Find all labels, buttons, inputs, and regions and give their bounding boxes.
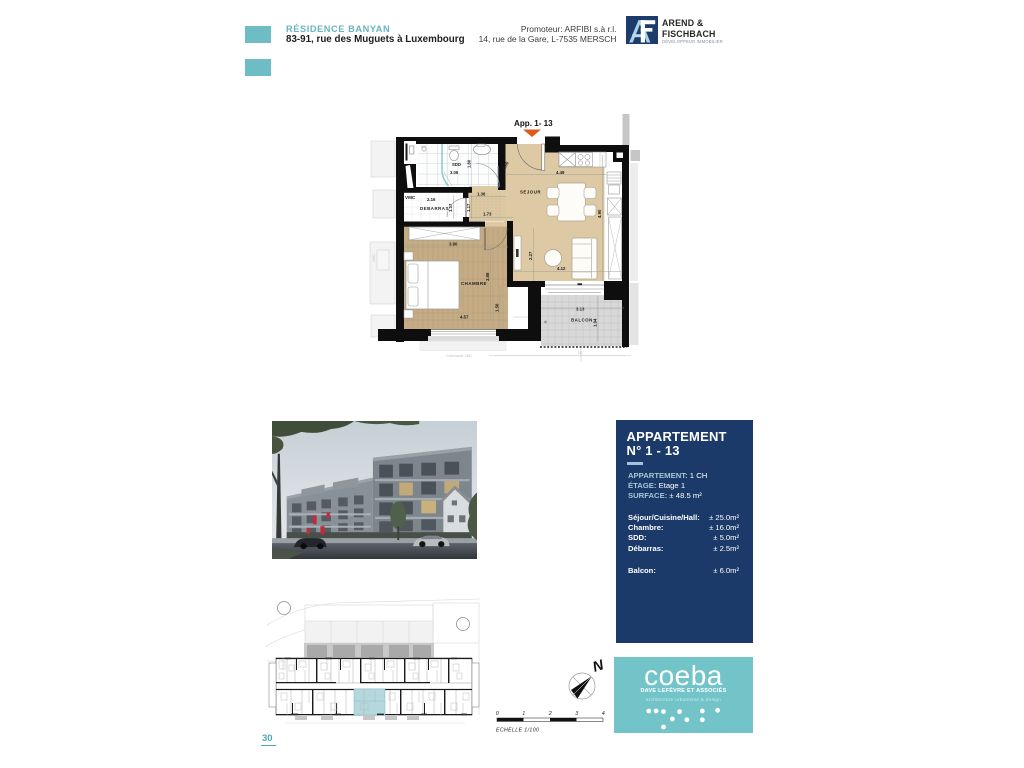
svg-text:App. 1- 13: App. 1- 13 bbox=[514, 119, 553, 128]
svg-text:18: 18 bbox=[578, 351, 582, 355]
svg-text:VMC: VMC bbox=[405, 195, 416, 200]
svg-text:DEBARRAS: DEBARRAS bbox=[420, 206, 449, 211]
svg-text:3.88: 3.88 bbox=[485, 272, 490, 281]
svg-text:2.27: 2.27 bbox=[528, 251, 533, 260]
svg-text:4.12: 4.12 bbox=[557, 266, 566, 271]
svg-text:Commande VMC: Commande VMC bbox=[446, 354, 473, 358]
svg-text:3: 3 bbox=[575, 711, 578, 717]
svg-text:4.90: 4.90 bbox=[597, 209, 602, 218]
svg-text:1.58: 1.58 bbox=[495, 303, 500, 312]
svg-text:1: 1 bbox=[522, 711, 525, 717]
svg-text:CHAMBRE: CHAMBRE bbox=[461, 281, 487, 286]
svg-text:1.17: 1.17 bbox=[466, 203, 471, 212]
svg-text:4.57: 4.57 bbox=[460, 315, 469, 320]
svg-text:N: N bbox=[591, 657, 606, 676]
svg-text:ECHELLE 1/100: ECHELLE 1/100 bbox=[496, 728, 539, 734]
svg-text:1.73: 1.73 bbox=[483, 212, 492, 217]
svg-text:SEJOUR: SEJOUR bbox=[520, 190, 541, 195]
svg-text:1.80: 1.80 bbox=[467, 159, 472, 168]
svg-text:3.13: 3.13 bbox=[576, 307, 585, 312]
svg-text:BALCON: BALCON bbox=[571, 318, 593, 323]
svg-text:1.94: 1.94 bbox=[593, 318, 598, 327]
svg-text:3.06: 3.06 bbox=[450, 170, 459, 175]
svg-text:3.90: 3.90 bbox=[449, 242, 458, 247]
svg-text:4.49: 4.49 bbox=[556, 170, 565, 175]
svg-text:BSR: BSR bbox=[421, 145, 426, 149]
svg-text:2: 2 bbox=[548, 711, 552, 717]
svg-text:SDD: SDD bbox=[452, 162, 461, 167]
svg-text:0: 0 bbox=[496, 711, 499, 717]
svg-text:4: 4 bbox=[602, 711, 605, 717]
svg-text:1.36: 1.36 bbox=[477, 192, 486, 197]
svg-text:2.16: 2.16 bbox=[427, 197, 436, 202]
svg-text:1.17: 1.17 bbox=[448, 203, 453, 212]
svg-text:VMC: VMC bbox=[372, 254, 376, 262]
